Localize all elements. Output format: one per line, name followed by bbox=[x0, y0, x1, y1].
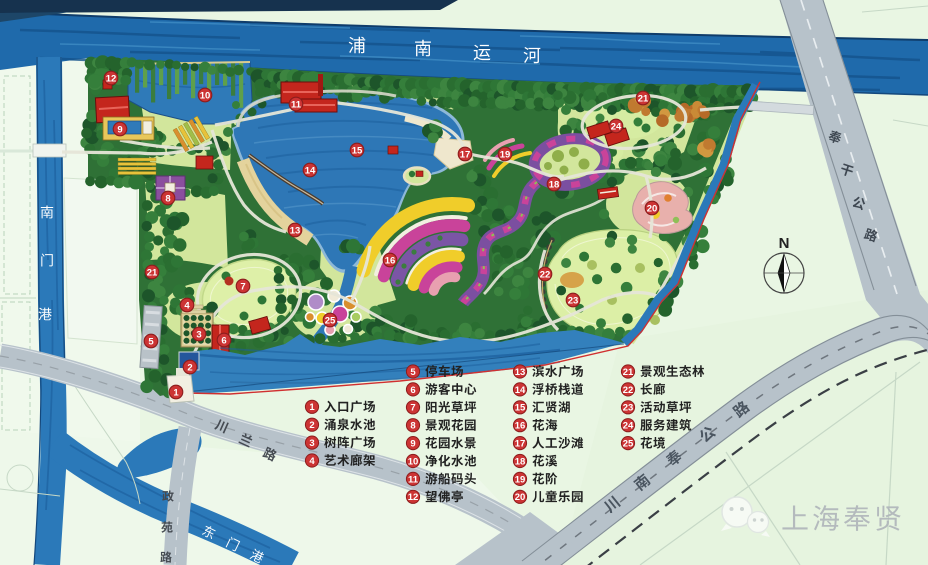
svg-text:24: 24 bbox=[623, 421, 634, 432]
svg-text:17: 17 bbox=[515, 439, 526, 450]
svg-text:15: 15 bbox=[515, 403, 526, 414]
svg-text:21: 21 bbox=[147, 267, 158, 278]
svg-text:21: 21 bbox=[638, 93, 649, 104]
svg-text:17: 17 bbox=[460, 149, 471, 160]
svg-text:6: 6 bbox=[221, 335, 226, 346]
svg-text:1: 1 bbox=[309, 402, 315, 413]
svg-text:24: 24 bbox=[611, 121, 622, 132]
svg-text:18: 18 bbox=[549, 179, 560, 190]
svg-text:7: 7 bbox=[410, 403, 415, 414]
svg-text:11: 11 bbox=[291, 99, 302, 110]
svg-text:18: 18 bbox=[515, 456, 526, 467]
svg-text:20: 20 bbox=[515, 492, 526, 503]
svg-text:8: 8 bbox=[410, 421, 415, 432]
svg-text:3: 3 bbox=[309, 438, 314, 449]
svg-text:15: 15 bbox=[352, 145, 363, 156]
svg-text:N: N bbox=[779, 235, 790, 252]
svg-text:13: 13 bbox=[515, 367, 526, 378]
svg-text:10: 10 bbox=[200, 90, 211, 101]
svg-text:6: 6 bbox=[410, 385, 415, 396]
svg-text:22: 22 bbox=[540, 269, 551, 280]
svg-text:19: 19 bbox=[515, 474, 526, 485]
svg-text:14: 14 bbox=[305, 165, 316, 176]
svg-text:21: 21 bbox=[623, 367, 634, 378]
svg-text:8: 8 bbox=[165, 193, 170, 204]
svg-text:1: 1 bbox=[173, 387, 179, 398]
svg-text:3: 3 bbox=[196, 329, 201, 340]
svg-text:5: 5 bbox=[410, 367, 416, 378]
svg-text:2: 2 bbox=[309, 420, 314, 431]
svg-text:2: 2 bbox=[187, 362, 192, 373]
svg-text:11: 11 bbox=[408, 474, 419, 485]
svg-text:14: 14 bbox=[515, 385, 526, 396]
svg-text:20: 20 bbox=[647, 203, 658, 214]
svg-text:22: 22 bbox=[623, 385, 634, 396]
svg-text:13: 13 bbox=[290, 225, 301, 236]
svg-text:16: 16 bbox=[385, 255, 396, 266]
svg-text:23: 23 bbox=[623, 403, 634, 414]
svg-text:4: 4 bbox=[309, 456, 315, 467]
svg-text:12: 12 bbox=[106, 73, 117, 84]
svg-text:23: 23 bbox=[568, 295, 579, 306]
svg-text:12: 12 bbox=[408, 492, 419, 503]
svg-text:4: 4 bbox=[184, 300, 190, 311]
svg-text:25: 25 bbox=[623, 439, 634, 450]
svg-text:19: 19 bbox=[500, 149, 511, 160]
svg-text:5: 5 bbox=[148, 336, 154, 347]
svg-text:9: 9 bbox=[117, 124, 122, 135]
svg-text:7: 7 bbox=[240, 281, 245, 292]
svg-text:9: 9 bbox=[410, 439, 415, 450]
svg-text:16: 16 bbox=[515, 421, 526, 432]
svg-text:10: 10 bbox=[408, 456, 419, 467]
svg-text:25: 25 bbox=[325, 315, 336, 326]
